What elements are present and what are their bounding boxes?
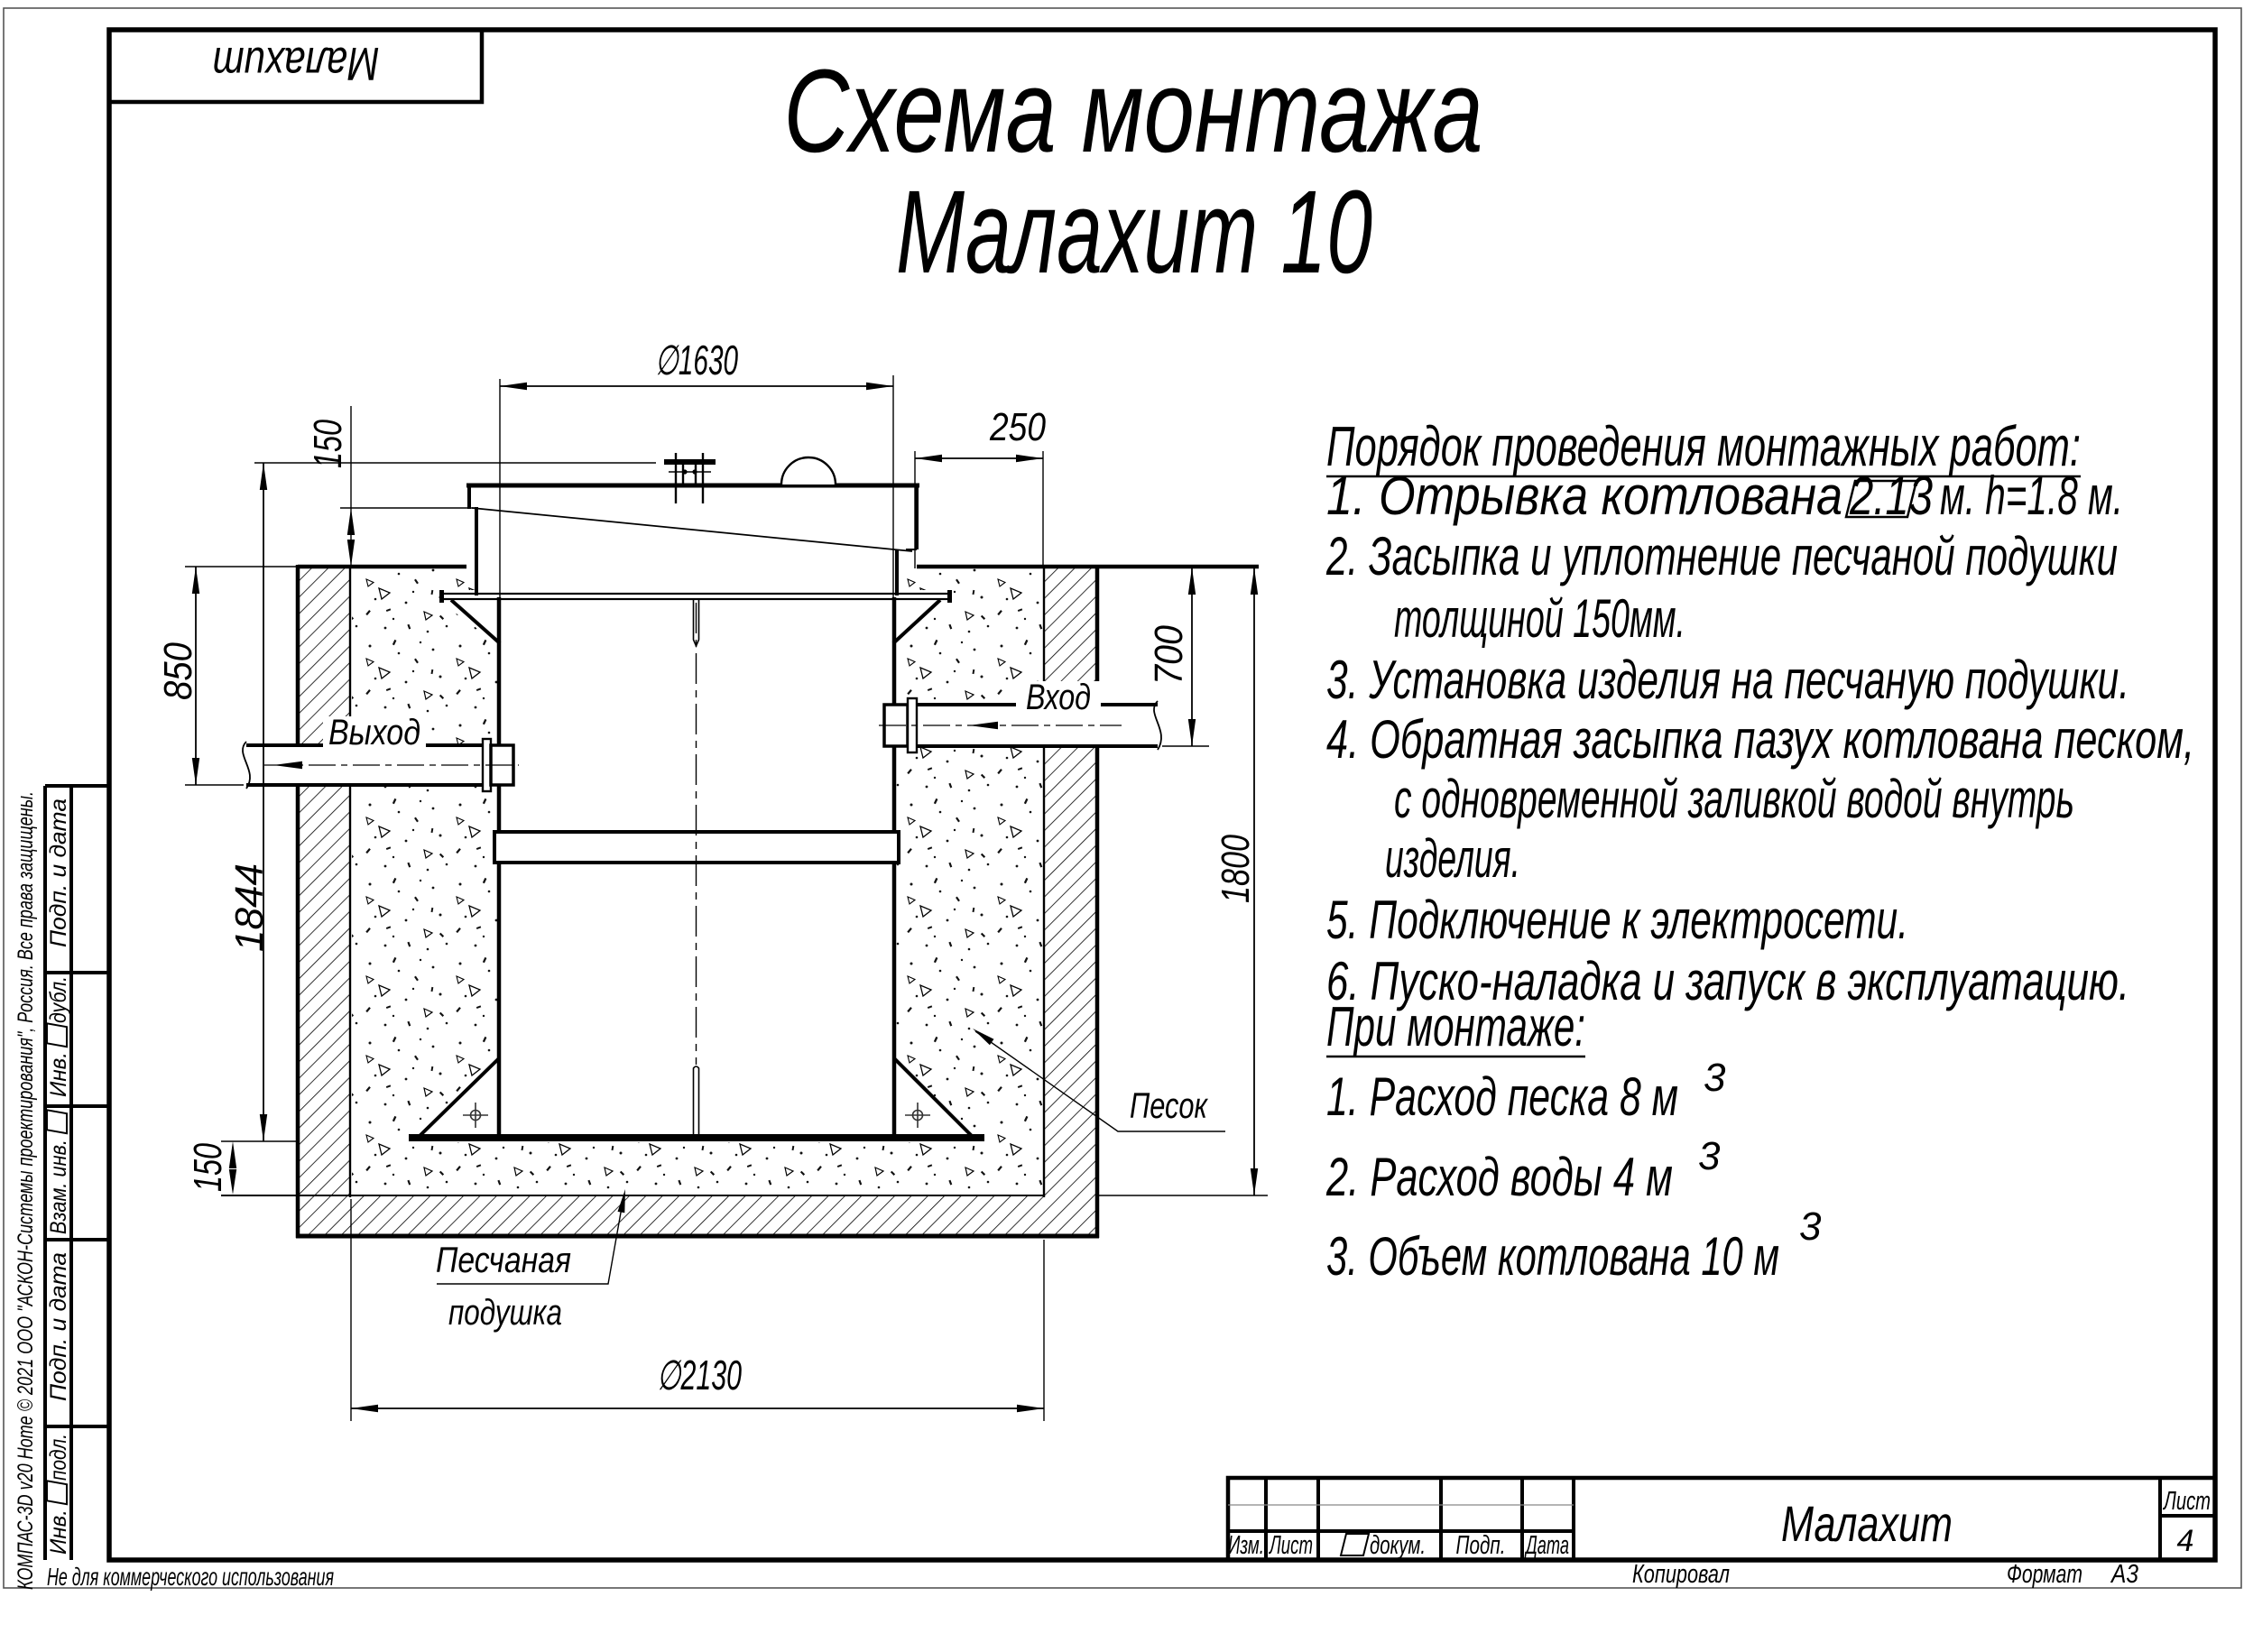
svg-text:3. Установка изделия на песчан: 3. Установка изделия на песчаную подушки… (1326, 650, 2129, 710)
svg-text:1. Расход песка 8 м: 1. Расход песка 8 м (1326, 1066, 1678, 1127)
svg-text:2. Расход воды 4 м: 2. Расход воды 4 м (1325, 1147, 1673, 1207)
svg-text:250: 250 (989, 405, 1046, 449)
svg-text:Не для коммерческого использов: Не для коммерческого использования (47, 1563, 334, 1591)
svg-text:1. Отрывка котлована: 1. Отрывка котлована (1326, 466, 1842, 526)
svg-text:1800: 1800 (1214, 835, 1258, 903)
svg-text:Малахит: Малахит (1781, 1495, 1953, 1552)
svg-text:Подп. и дата: Подп. и дата (46, 798, 71, 947)
svg-text:КОМПАС-3D v20 Home © 2021 ООО: КОМПАС-3D v20 Home © 2021 ООО "АСКОН-Сис… (14, 791, 38, 1590)
svg-text:Малахит: Малахит (213, 37, 380, 89)
svg-text:дубл.: дубл. (46, 976, 71, 1023)
svg-text:А3: А3 (2110, 1560, 2138, 1589)
svg-text:подушка: подушка (448, 1293, 562, 1333)
svg-text:Дата: Дата (1524, 1531, 1569, 1560)
svg-text:5. Подключение к электросети.: 5. Подключение к электросети. (1326, 890, 1908, 950)
svg-text:Изм.: Изм. (1228, 1531, 1264, 1560)
svg-text:3. Объем котлована 10 м: 3. Объем котлована 10 м (1326, 1226, 1779, 1287)
svg-text:150: 150 (186, 1143, 230, 1192)
svg-text:1844: 1844 (227, 863, 272, 952)
svg-text:850: 850 (156, 642, 200, 700)
svg-text:м. h=1.8 м.: м. h=1.8 м. (1940, 466, 2123, 526)
svg-text:2. Засыпка и уплотнение песчан: 2. Засыпка и уплотнение песчаной подушки (1325, 526, 2118, 586)
svg-text:Песок: Песок (1130, 1086, 1209, 1126)
svg-text:Инв.: Инв. (46, 1509, 71, 1555)
svg-text:3: 3 (1704, 1056, 1726, 1100)
svg-text:3: 3 (1698, 1134, 1721, 1178)
svg-text:Песчаная: Песчаная (436, 1241, 571, 1280)
svg-text:150: 150 (306, 420, 350, 468)
svg-text:Выход: Выход (328, 713, 420, 752)
svg-text:Инв.: Инв. (46, 1052, 71, 1097)
svg-text:Малахит 10: Малахит 10 (896, 165, 1372, 298)
svg-text:подл.: подл. (46, 1434, 71, 1481)
svg-text:Подп.: Подп. (1456, 1531, 1506, 1560)
svg-text:Лист: Лист (1269, 1531, 1313, 1560)
svg-text:Схема монтажа: Схема монтажа (784, 44, 1483, 177)
svg-text:3: 3 (1799, 1204, 1822, 1249)
svg-text:4: 4 (2177, 1524, 2194, 1558)
svg-text:∅1630: ∅1630 (655, 337, 738, 383)
svg-text:с одновременной заливкой водой: с одновременной заливкой водой внутрь (1394, 769, 2074, 829)
svg-text:2.13: 2.13 (1849, 466, 1933, 526)
svg-text:Лист: Лист (2163, 1487, 2211, 1516)
svg-text:4. Обратная засыпка пазух котл: 4. Обратная засыпка пазух котлована песк… (1326, 709, 2194, 770)
svg-text:При монтаже:: При монтаже: (1326, 996, 1585, 1058)
svg-text:∅2130: ∅2130 (657, 1352, 742, 1398)
svg-text:изделия.: изделия. (1385, 828, 1520, 889)
svg-text:толщиной 150мм.: толщиной 150мм. (1394, 588, 1685, 649)
svg-text:Подп. и дата: Подп. и дата (46, 1252, 71, 1401)
svg-text:Формат: Формат (2007, 1560, 2082, 1589)
svg-text:Копировал: Копировал (1632, 1560, 1730, 1589)
svg-text:докум.: докум. (1370, 1531, 1426, 1560)
svg-text:Взам. инв.: Взам. инв. (46, 1140, 71, 1234)
svg-text:Вход: Вход (1026, 678, 1091, 717)
svg-text:700: 700 (1147, 625, 1191, 685)
